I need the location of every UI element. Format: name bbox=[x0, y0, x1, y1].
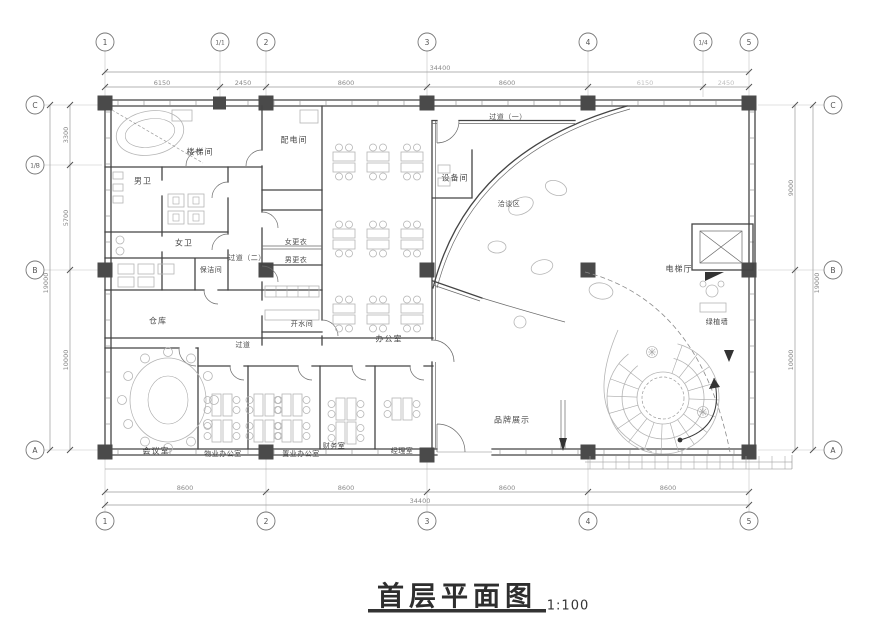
svg-text:5: 5 bbox=[747, 38, 752, 47]
label-green-wall: 绿植墙 bbox=[706, 317, 729, 326]
svg-text:1/4: 1/4 bbox=[698, 41, 708, 47]
grid-bubble-left-c: C bbox=[26, 96, 44, 114]
label-open-office: 办公室 bbox=[376, 334, 403, 344]
dim-top-total: 34400 bbox=[430, 64, 451, 72]
interior-walls bbox=[105, 106, 575, 449]
spiral-stair bbox=[607, 344, 720, 454]
svg-text:2: 2 bbox=[264, 38, 269, 47]
grid-bubble-top-3: 3 bbox=[418, 33, 436, 51]
svg-text:3: 3 bbox=[425, 38, 430, 47]
dim-top-seg-2: 2450 bbox=[235, 79, 252, 87]
svg-text:5: 5 bbox=[747, 517, 752, 526]
label-mens-wc: 男卫 bbox=[134, 177, 152, 186]
svg-text:C: C bbox=[32, 101, 37, 110]
dim-top-seg-6: 2450 bbox=[718, 79, 735, 87]
grid-bubble-top-5: 5 bbox=[740, 33, 758, 51]
grid-bubble-right-c: C bbox=[824, 96, 842, 114]
svg-text:A: A bbox=[32, 446, 38, 455]
svg-text:1/1: 1/1 bbox=[215, 41, 225, 47]
dim-top-seg-3: 8600 bbox=[338, 79, 355, 87]
grid-bubble-bottom-3: 3 bbox=[418, 512, 436, 530]
label-men-locker: 男更衣 bbox=[285, 255, 308, 264]
drawing-title: 首层平面图 bbox=[377, 581, 537, 613]
label-corridor2: 过道（二） bbox=[228, 253, 266, 262]
svg-text:4: 4 bbox=[586, 517, 591, 526]
dim-bottom-seg-1: 8600 bbox=[177, 484, 194, 492]
grid-bubble-top-1: 1 bbox=[96, 33, 114, 51]
grid-bubble-top-4: 4 bbox=[579, 33, 597, 51]
grid-bubble-bottom-5: 5 bbox=[740, 512, 758, 530]
dim-top-seg-4: 8600 bbox=[499, 79, 516, 87]
grid-bubble-bottom-4: 4 bbox=[579, 512, 597, 530]
svg-text:1: 1 bbox=[103, 517, 108, 526]
grid-bubble-right-b: B bbox=[824, 261, 842, 279]
grid-bubble-top-1-1: 1/1 bbox=[211, 33, 229, 51]
label-property-office: 物业办公室 bbox=[204, 449, 242, 458]
grid-bubble-top-1-4: 1/4 bbox=[694, 33, 712, 51]
svg-text:1: 1 bbox=[103, 38, 108, 47]
svg-text:B: B bbox=[32, 266, 37, 275]
label-cleaning: 保洁间 bbox=[200, 265, 223, 274]
grid-bubble-left-a: A bbox=[26, 441, 44, 459]
label-corridor1: 过道（一） bbox=[489, 112, 527, 121]
label-storage: 仓库 bbox=[149, 316, 167, 326]
grid-bubble-left-b: B bbox=[26, 261, 44, 279]
label-manager: 经理室 bbox=[391, 446, 414, 455]
svg-text:3: 3 bbox=[425, 517, 430, 526]
dim-right-total: 19000 bbox=[813, 273, 821, 294]
dim-top-seg-1: 6150 bbox=[154, 79, 171, 87]
label-equipment: 设备间 bbox=[442, 173, 469, 183]
grid-bubble-bottom-1: 1 bbox=[96, 512, 114, 530]
label-pantry: 开水间 bbox=[291, 319, 314, 328]
svg-text:C: C bbox=[830, 101, 835, 110]
dim-right-seg-2: 10000 bbox=[787, 350, 795, 371]
label-women-locker: 女更衣 bbox=[285, 237, 308, 246]
label-meeting: 会议室 bbox=[143, 446, 170, 456]
svg-text:1/B: 1/B bbox=[30, 164, 40, 170]
dim-left-seg-2: 5700 bbox=[62, 210, 70, 227]
dim-top-seg-5: 6150 bbox=[637, 79, 654, 87]
title-underline bbox=[368, 609, 546, 613]
label-elevator-hall: 电梯厅 bbox=[666, 264, 693, 274]
label-womens-wc: 女卫 bbox=[175, 238, 193, 248]
dim-bottom-total: 34400 bbox=[410, 497, 431, 505]
label-stair-hall: 楼梯间 bbox=[187, 147, 214, 157]
label-brand-display: 品牌展示 bbox=[494, 415, 530, 425]
svg-text:2: 2 bbox=[264, 517, 269, 526]
label-negotiation: 洽谈区 bbox=[498, 199, 521, 208]
furniture bbox=[112, 105, 726, 452]
dim-left-seg-3: 10000 bbox=[62, 350, 70, 371]
label-sales-office: 置业办公室 bbox=[282, 449, 320, 458]
conference-table bbox=[130, 358, 206, 442]
svg-text:B: B bbox=[830, 266, 835, 275]
floor-plan-page: 34400 6150 2450 8600 8600 6150 2450 8600… bbox=[0, 0, 875, 644]
label-electrical: 配电间 bbox=[281, 135, 308, 145]
svg-text:4: 4 bbox=[586, 38, 591, 47]
label-finance: 财务室 bbox=[323, 441, 346, 450]
dim-right-seg-1: 9000 bbox=[787, 180, 795, 197]
grid-bubble-top-2: 2 bbox=[257, 33, 275, 51]
grid-bubble-bottom-2: 2 bbox=[257, 512, 275, 530]
dim-bottom-seg-4: 8600 bbox=[660, 484, 677, 492]
dim-left-total: 19000 bbox=[42, 273, 50, 294]
dim-bottom-seg-2: 8600 bbox=[338, 484, 355, 492]
floor-plan-drawing: 34400 6150 2450 8600 8600 6150 2450 8600… bbox=[0, 0, 875, 644]
conference-chairs bbox=[118, 348, 219, 453]
label-corridor: 过道 bbox=[236, 340, 251, 349]
dim-bottom-seg-3: 8600 bbox=[499, 484, 516, 492]
grid-bubble-right-a: A bbox=[824, 441, 842, 459]
dim-left-seg-1: 3300 bbox=[62, 127, 70, 144]
drawing-scale: 1:100 bbox=[547, 599, 589, 614]
grid-bubble-left-1b: 1/B bbox=[26, 156, 44, 174]
drawing-title-block: 首层平面图 1:100 bbox=[368, 581, 589, 614]
svg-text:A: A bbox=[830, 446, 836, 455]
